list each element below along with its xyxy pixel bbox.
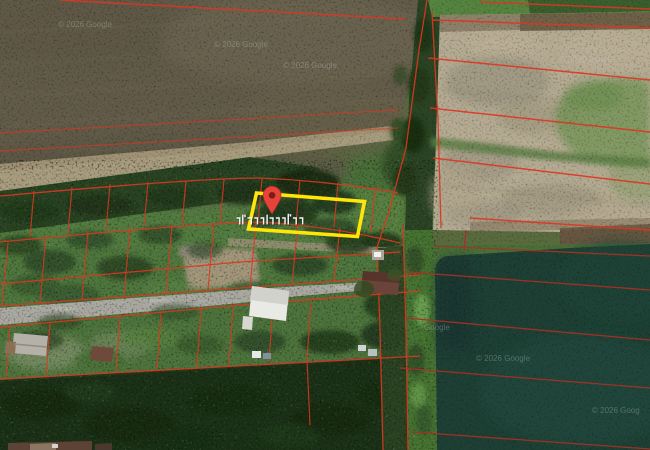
svg-text:© 2026 Google: © 2026 Google	[476, 354, 530, 363]
svg-text:© 2026 Google: © 2026 Google	[283, 61, 337, 70]
svg-text:© 2026 Goog: © 2026 Goog	[592, 406, 640, 415]
svg-text:Google: Google	[424, 323, 450, 332]
svg-text:© 2026 Google: © 2026 Google	[560, 55, 614, 64]
svg-text:© 2026 Google: © 2026 Google	[214, 40, 268, 49]
svg-text:© 2026 Google: © 2026 Google	[58, 20, 112, 29]
